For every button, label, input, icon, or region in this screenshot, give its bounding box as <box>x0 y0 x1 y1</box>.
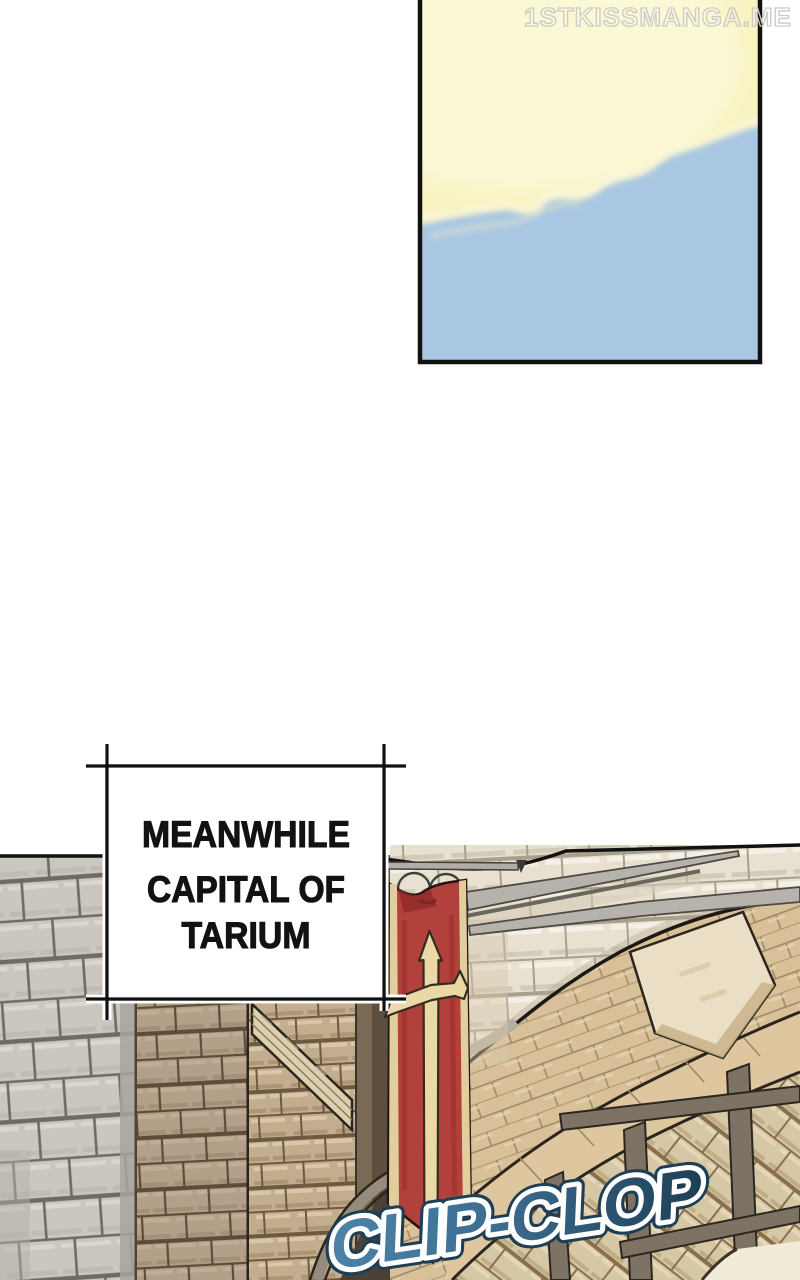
svg-text:MEANWHILE: MEANWHILE <box>142 814 350 855</box>
svg-text:TARIUM: TARIUM <box>182 915 311 956</box>
svg-text:CAPITAL OF: CAPITAL OF <box>147 869 345 910</box>
svg-text:1STKISSMANGA.ME: 1STKISSMANGA.ME <box>524 2 792 32</box>
